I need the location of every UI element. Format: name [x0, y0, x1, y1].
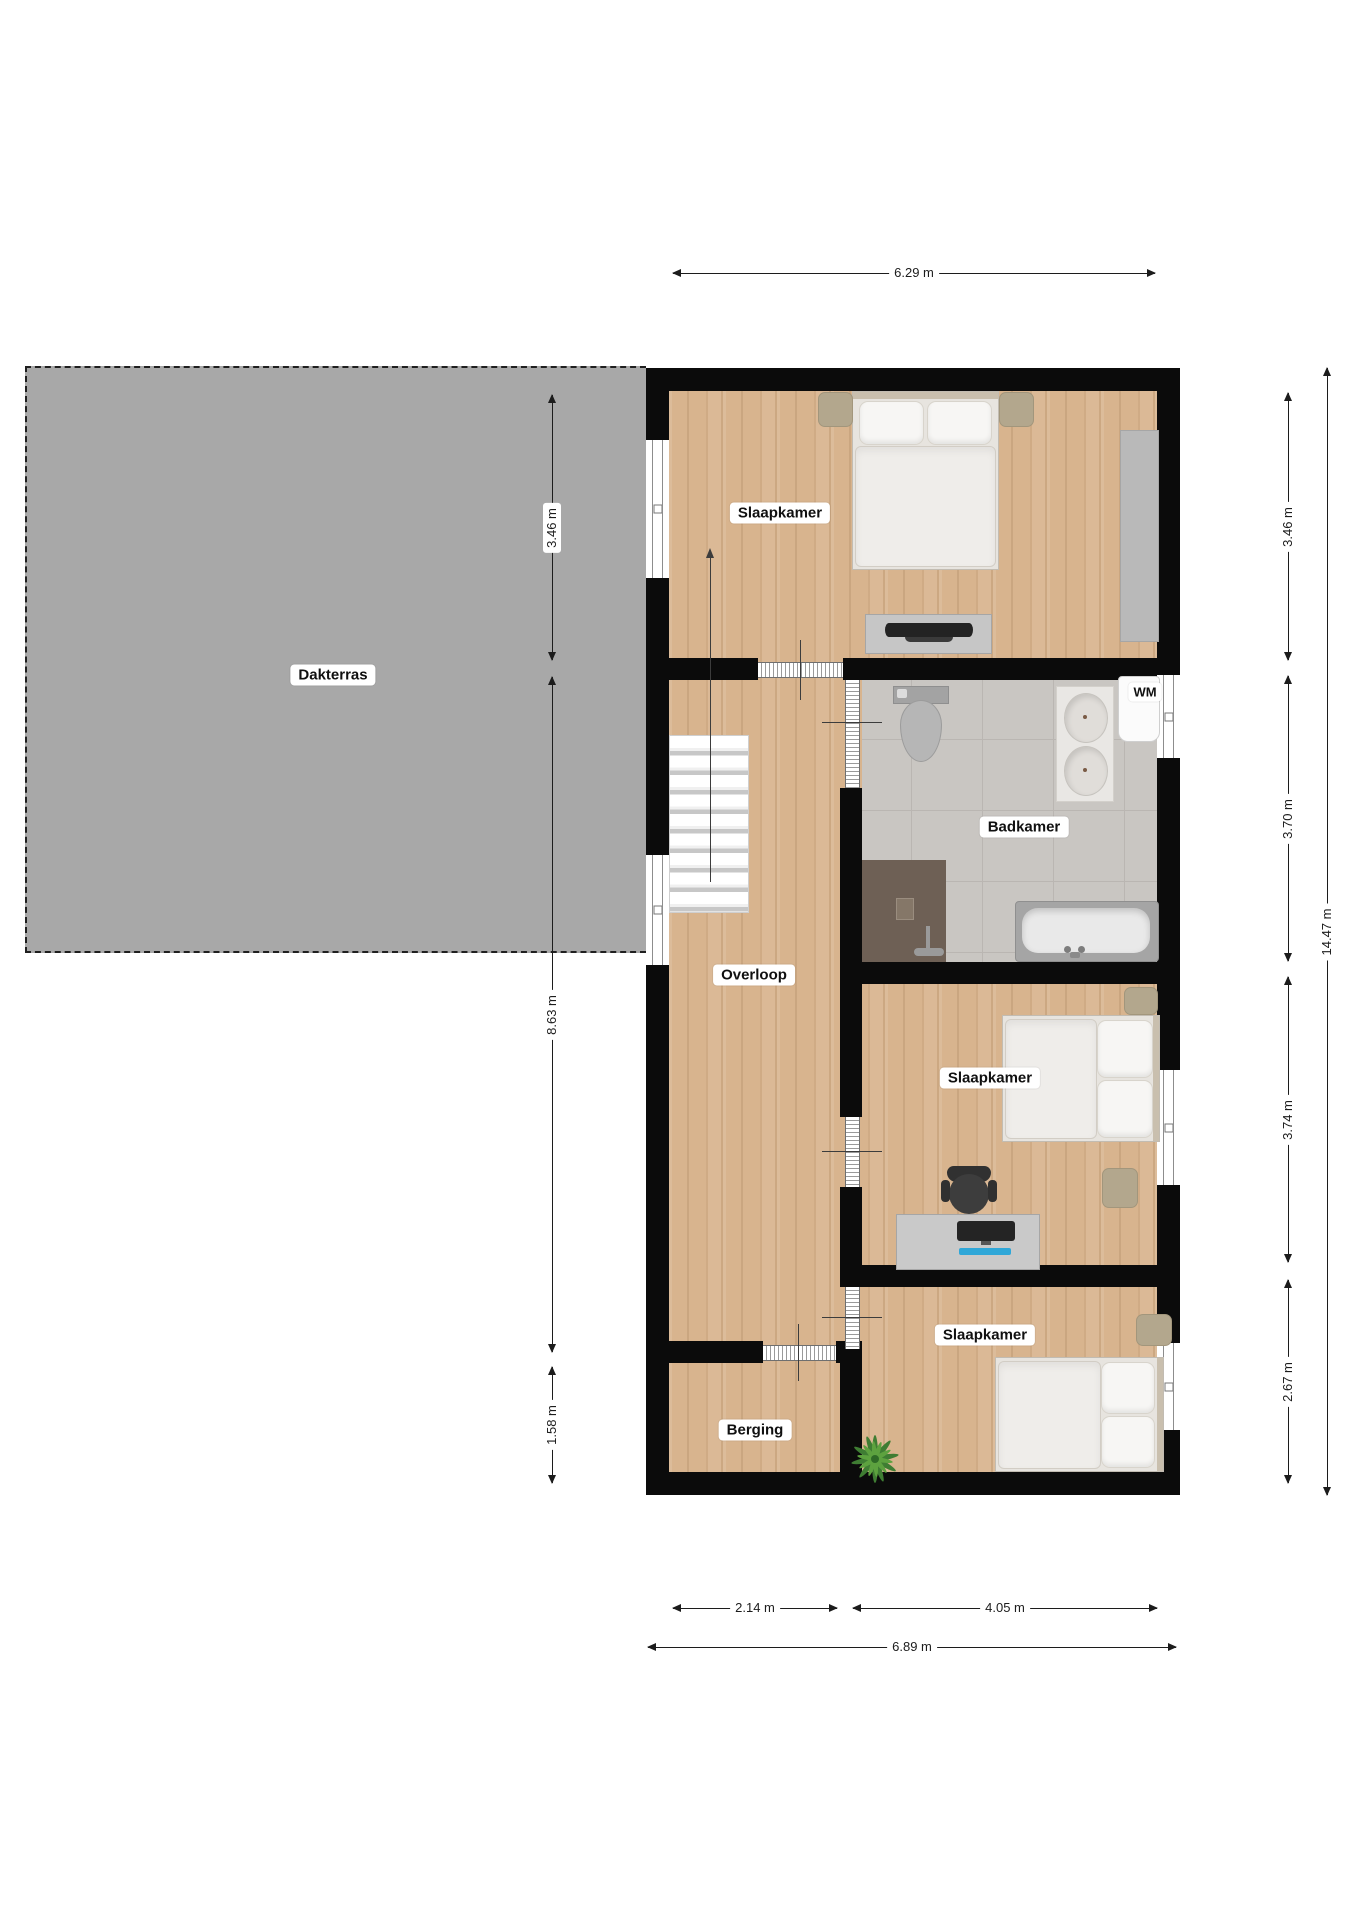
duvet	[998, 1361, 1101, 1469]
sliding-door	[763, 1345, 836, 1361]
arrow-left-icon	[647, 1643, 656, 1651]
stair-direction-line	[710, 556, 711, 882]
chair-armrest	[941, 1180, 950, 1202]
arrow-down-icon	[548, 1475, 556, 1484]
dimension-bottom-right: 4.05 m	[853, 1608, 1157, 1609]
arrow-down-icon	[1323, 1487, 1331, 1496]
arrow-left-icon	[852, 1604, 861, 1612]
stairs	[669, 735, 749, 913]
bathtub-spout	[1070, 952, 1080, 958]
room-label-wm: WM	[1128, 683, 1161, 702]
tv-stand	[905, 637, 953, 642]
dimension-right-total: 14.47 m	[1327, 368, 1328, 1495]
dimension-left-bottom: 1.58 m	[552, 1367, 553, 1483]
door-tick	[822, 1151, 882, 1152]
double-sink-vanity	[1056, 686, 1114, 802]
sliding-door	[845, 1287, 860, 1349]
door-tick	[798, 1324, 799, 1381]
arrow-down-icon	[1284, 652, 1292, 661]
arrow-down-icon	[1284, 953, 1292, 962]
monitor-stand	[981, 1241, 991, 1245]
pillow	[1097, 1080, 1153, 1138]
floor-plan: Dakterras Slaapkamer Badkamer Overloop S…	[0, 0, 1358, 1920]
arrow-left-icon	[672, 269, 681, 277]
office-chair	[941, 1166, 997, 1222]
wall-segment	[840, 962, 1157, 984]
arrow-down-icon	[1284, 1475, 1292, 1484]
door-tick	[822, 1317, 882, 1318]
nightstand	[1102, 1168, 1138, 1208]
toilet-flush-button	[897, 689, 907, 698]
window-handle-icon	[1164, 1382, 1173, 1391]
dresser	[865, 614, 992, 654]
pillow	[1101, 1362, 1155, 1414]
bathtub	[1015, 901, 1159, 962]
wall-bottom	[646, 1472, 1180, 1495]
arrow-up-icon	[548, 1366, 556, 1375]
arrow-up-icon	[1284, 976, 1292, 985]
pillow	[927, 401, 992, 445]
room-label-badkamer: Badkamer	[980, 817, 1069, 838]
headboard	[853, 392, 998, 399]
desk	[896, 1214, 1040, 1270]
sink-drain	[1083, 715, 1087, 719]
dimension-right-room1: 3.46 m	[1288, 393, 1289, 660]
wall-top	[646, 368, 1180, 391]
shower-drain	[896, 898, 914, 920]
arrow-down-icon	[548, 1344, 556, 1353]
wall-segment	[843, 658, 1157, 680]
arrow-left-icon	[672, 1604, 681, 1612]
wall-segment	[669, 658, 758, 680]
room-label-dakterras: Dakterras	[290, 665, 375, 686]
shower	[862, 860, 946, 962]
window	[646, 855, 669, 965]
headboard	[1157, 1358, 1163, 1471]
window-handle-icon	[653, 505, 662, 514]
room-label-overloop: Overloop	[713, 965, 795, 986]
door-tick	[800, 640, 801, 700]
chair-seat	[949, 1174, 989, 1214]
arrow-up-icon	[1323, 367, 1331, 376]
keyboard-icon	[959, 1248, 1011, 1255]
dimension-bottom-total: 6.89 m	[648, 1647, 1176, 1648]
duvet	[855, 446, 996, 567]
chair-armrest	[988, 1180, 997, 1202]
monitor-icon	[957, 1221, 1015, 1241]
headboard	[1153, 1016, 1159, 1141]
tv-icon	[885, 623, 973, 637]
toilet	[893, 686, 947, 764]
sliding-door	[845, 1117, 860, 1187]
dimension-terrace-height: 3.46 m	[552, 395, 553, 660]
plant	[846, 1430, 904, 1488]
dimension-top-width: 6.29 m	[673, 273, 1155, 274]
pillow	[1097, 1020, 1153, 1078]
wall-segment	[840, 788, 862, 1117]
pillow	[1101, 1416, 1155, 1468]
wall-segment	[646, 1341, 763, 1363]
pillow	[859, 401, 924, 445]
window-handle-icon	[653, 906, 662, 915]
arrow-up-icon	[1284, 675, 1292, 684]
window	[646, 440, 669, 578]
dimension-right-room2: 3.70 m	[1288, 676, 1289, 961]
arrow-down-icon	[1284, 1254, 1292, 1263]
room-label-slaapkamer-bottom: Slaapkamer	[935, 1325, 1035, 1346]
sliding-door	[845, 680, 860, 788]
double-bed	[995, 1357, 1164, 1472]
dimension-right-room4: 2.67 m	[1288, 1280, 1289, 1483]
arrow-right-icon	[1149, 1604, 1158, 1612]
arrow-up-icon	[1284, 1279, 1292, 1288]
shower-head-icon	[914, 948, 944, 956]
sink-drain	[1083, 768, 1087, 772]
toilet-bowl	[900, 700, 942, 762]
nightstand	[818, 392, 853, 427]
dimension-bottom-left: 2.14 m	[673, 1608, 837, 1609]
arrow-down-icon	[548, 652, 556, 661]
room-label-slaapkamer-middle: Slaapkamer	[940, 1068, 1040, 1089]
window-handle-icon	[1164, 712, 1173, 721]
arrow-right-icon	[1168, 1643, 1177, 1651]
nightstand	[1136, 1314, 1172, 1346]
room-label-berging: Berging	[719, 1420, 792, 1441]
wardrobe	[1120, 430, 1159, 642]
arrow-right-icon	[1147, 269, 1156, 277]
stair-direction-arrow-icon	[706, 548, 714, 558]
window-handle-icon	[1164, 1123, 1173, 1132]
wall-right	[1157, 391, 1180, 1472]
door-tick	[822, 722, 882, 723]
bathtub-basin	[1022, 908, 1150, 953]
arrow-right-icon	[829, 1604, 838, 1612]
arrow-up-icon	[548, 676, 556, 685]
room-label-slaapkamer-top: Slaapkamer	[730, 503, 830, 524]
window	[1157, 1070, 1180, 1185]
arrow-up-icon	[1284, 392, 1292, 401]
nightstand	[999, 392, 1034, 427]
nightstand	[1124, 987, 1158, 1015]
dimension-left-middle: 8.63 m	[552, 677, 553, 1352]
double-bed	[852, 391, 999, 570]
dimension-right-room3: 3.74 m	[1288, 977, 1289, 1262]
arrow-up-icon	[548, 394, 556, 403]
